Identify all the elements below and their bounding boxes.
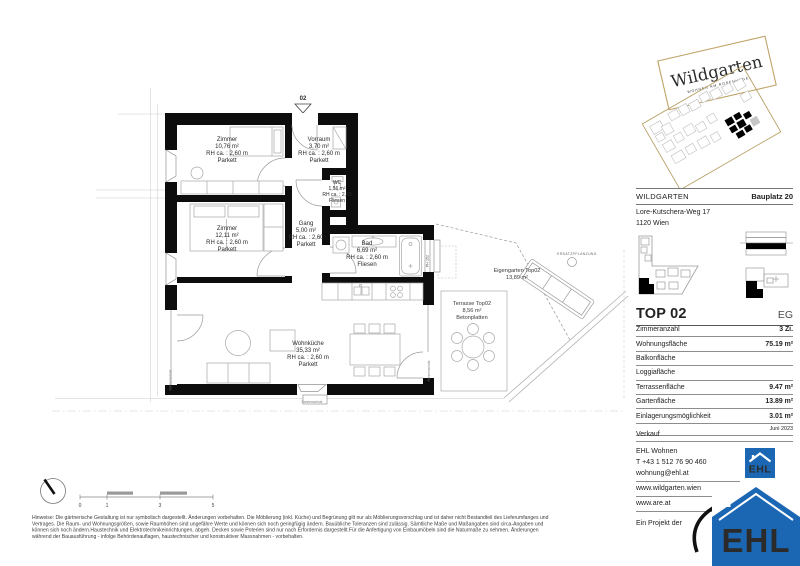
row-value: 75.19 m²: [765, 341, 793, 348]
address-street: Lore-Kutschera-Weg 17: [636, 209, 793, 216]
row-label: Zimmeranzahl: [636, 326, 680, 333]
closet-icon: [333, 127, 346, 149]
outdoor-name: Terrasse Top02: [453, 301, 491, 307]
room-height: RH ca. : 2,60 m: [287, 355, 329, 361]
contact-block: Verkauf EHL Wohnen T +43 1 512 76 90 460…: [636, 429, 793, 442]
washing-machine-icon: [333, 237, 349, 253]
label-terrasse: Terrasse Top02 8,56 m² Betonplatten: [453, 301, 491, 321]
address-block: WILDGARTEN Bauplatz 20 Lore-Kutschera-We…: [636, 188, 793, 227]
side-table-icon: [191, 167, 203, 179]
room-area: 3,70 m²: [309, 144, 329, 150]
mini-diagrams: [636, 230, 793, 306]
wardrobe-icon: [264, 204, 283, 251]
room-name: Zimmer: [217, 137, 237, 143]
room-area: 12,11 m²: [215, 233, 238, 239]
room-name: Bad: [362, 241, 373, 247]
row-label: Gartenfläche: [636, 398, 675, 405]
row-value: 9.47 m²: [769, 384, 793, 391]
ehl-logo-text: EHL: [749, 464, 772, 476]
garden-table-icon: [452, 324, 495, 371]
row-label: Wohnungsfläche: [636, 341, 687, 348]
room-floor: Parkett: [217, 247, 236, 253]
room-floor: Parkett: [309, 158, 328, 164]
ehl-logo-small: EHL: [745, 448, 775, 478]
table-row: Loggiafläche: [636, 366, 793, 380]
disclaimer-line-1: Hinweise: Die gärtnerische Gestaltung is…: [32, 514, 549, 521]
room-name: Vorraum: [308, 137, 331, 143]
room-floor: Fliesen: [357, 262, 376, 268]
entry-arrow-icon: [295, 104, 311, 113]
room-height: RH ca. : 2,60 m: [206, 240, 248, 246]
contact-email: wohnung@ehl.at: [636, 470, 740, 482]
ehl-logo-text: EHL: [722, 522, 791, 559]
project-of-label: Ein Projekt der: [636, 520, 682, 527]
row-value: 3.01 m²: [769, 413, 793, 420]
room-height: RH ca. : 2,60 m: [298, 151, 340, 157]
outdoor-area: 8,56 m²: [463, 308, 482, 314]
floor-level-icon: [744, 266, 791, 301]
annotation-sonnenschutz-left: Sonnenschutz: [169, 369, 173, 390]
vanity-sink-icon: [352, 236, 396, 247]
north-arrow-icon: [41, 479, 66, 504]
dining-table-icon: [350, 324, 400, 376]
table-row: Wohnungsfläche 75.19 m²: [636, 337, 793, 351]
entry-label: 02: [300, 96, 307, 102]
spec-table: Zimmeranzahl 3 Zi. Wohnungsfläche 75.19 …: [636, 323, 793, 436]
disclaimer-line-2: Vertrages. Die Raum- und Wohnungsgrößen,…: [32, 521, 544, 527]
building-section-icon: [740, 230, 793, 260]
scale-label-1: 1: [106, 503, 109, 509]
wc-door: [296, 180, 322, 206]
row-label: Einlagerungsmöglichkeit: [636, 413, 711, 420]
room-floor: Parkett: [296, 242, 315, 248]
row-label: Loggiafläche: [636, 369, 675, 376]
garden-detail-outline: [438, 246, 456, 278]
project-name: WILDGARTEN: [636, 192, 689, 201]
contact-heading: Verkauf: [636, 429, 793, 442]
wardrobe-icon: [181, 181, 283, 194]
outdoor-floor: Betonplatten: [456, 315, 487, 321]
room-name: Zimmer: [217, 226, 237, 232]
contact-company: EHL Wohnen: [636, 448, 677, 455]
table-row: Zimmeranzahl 3 Zi.: [636, 323, 793, 337]
site-plan-map: [628, 66, 794, 188]
scale-bar: 0 1 3 5: [79, 492, 215, 510]
room-label-gang: Gang 5,00 m² RH ca. : 2,60 Parkett: [288, 221, 324, 248]
wk-left-door: [177, 315, 203, 341]
disclaimer-line-3: können sich noch ändern.Haustechnik und …: [32, 527, 539, 534]
annotation-sonnenschutz-right: Sonnenschutz: [427, 360, 431, 381]
bathtub-icon: [400, 236, 422, 276]
contact-phone: T +43 1 512 76 90 460: [636, 459, 707, 466]
room-floor: Fliesen: [329, 198, 345, 204]
scale-label-5: 5: [212, 503, 215, 509]
outdoor-area: 13,89 m²: [506, 275, 528, 281]
scale-label-0: 0: [79, 503, 82, 509]
info-sidebar: Wildgarten WOHNEN AM ROSENHÜGEL: [628, 0, 800, 566]
room-height: RH ca. : 2,60: [288, 235, 324, 241]
room-area: 6,69 m²: [357, 248, 377, 254]
room-height: RH ca. : 2,60 m: [206, 151, 248, 157]
row-value: 3 Zi.: [779, 326, 793, 333]
room-floor: Parkett: [217, 158, 236, 164]
unit-number: TOP 02: [636, 306, 687, 322]
row-label: Balkonfläche: [636, 355, 675, 362]
room-area: 10,76 m²: [215, 144, 239, 150]
room-height: RH ca. : 2,60 m: [346, 255, 388, 261]
tree-icon: [568, 258, 577, 267]
room-name: Gang: [299, 221, 314, 227]
table-row: Balkonfläche: [636, 352, 793, 366]
scale-label-3: 3: [159, 503, 162, 509]
table-row: Einlagerungsmöglichkeit 3.01 m²: [636, 409, 793, 423]
disclaimer-line-4: während der Bauausführung - infolge Behö…: [32, 534, 304, 540]
building-plan-icon: [636, 234, 702, 300]
sofa-icon: [207, 363, 270, 383]
room-name: Wohnküche: [292, 341, 324, 347]
zimmer2-door: [257, 248, 285, 276]
table-row: Gartenfläche 13.89 m²: [636, 395, 793, 409]
annotation-parapet-height: PH 152: [426, 255, 430, 267]
entry-marker: 02: [295, 96, 311, 113]
room-area: 35,33 m²: [296, 348, 320, 354]
floorplan-sheet: 02: [0, 0, 800, 566]
disclaimer: Hinweise: Die gärtnerische Gestaltung is…: [32, 514, 549, 540]
room-floor: Parkett: [298, 362, 317, 368]
room-label-wohnkueche: Wohnküche 35,33 m² RH ca. : 2,60 m Parke…: [287, 341, 329, 368]
row-value: 13.89 m²: [765, 398, 793, 405]
row-label: Terrassenfläche: [636, 384, 685, 391]
label-ersatzpflanzung: ERSATZPFLANZUNG: [557, 252, 597, 256]
table-row: Terrassenfläche 9.47 m²: [636, 381, 793, 395]
kitchen-counter-icon: [322, 283, 423, 300]
bauplatz-label: Bauplatz 20: [751, 192, 793, 201]
round-table-icon: [226, 331, 251, 356]
floor-plan: 02: [0, 0, 630, 566]
address-city: 1120 Wien: [636, 220, 793, 227]
wk-right-door: [397, 352, 423, 378]
room-area: 5,00 m²: [296, 228, 316, 234]
annotation-sonnenschutz-bottom: Sonnenschutz: [302, 400, 323, 404]
outdoor-name: Eigengarten Top02: [494, 268, 541, 274]
ehl-logo-large: EHL: [712, 484, 800, 566]
floor-level: EG: [778, 309, 793, 321]
